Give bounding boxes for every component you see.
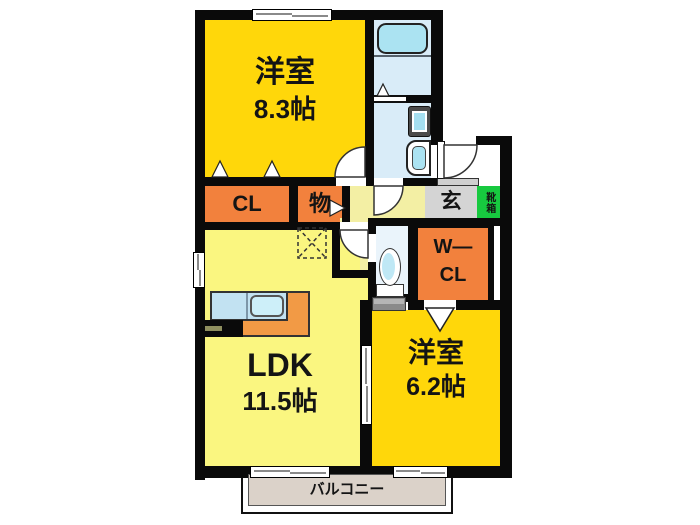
label-bedroom62-name: 洋室 xyxy=(372,336,500,370)
label-balcony: バルコニー xyxy=(248,476,446,504)
door-arc-entrance xyxy=(444,145,477,178)
label-bedroom62-size: 6.2帖 xyxy=(372,372,500,402)
label-wcl-line1: W— xyxy=(418,234,488,260)
refrigerator-space xyxy=(298,228,326,258)
floor-plan: 洋室 8.3帖 LDK 11.5帖 洋室 6.2帖 CL 物 玄 靴箱 W— C… xyxy=(0,0,700,525)
triangle-closet-door-2 xyxy=(264,161,280,177)
label-wcl-line2: CL xyxy=(418,262,488,288)
label-closet: CL xyxy=(205,186,289,222)
label-ldk-size: 11.5帖 xyxy=(210,386,350,418)
triangle-bath-door xyxy=(377,84,389,96)
door-arc-bedroom83 xyxy=(335,147,365,177)
triangle-wcl-door xyxy=(426,308,454,331)
label-bedroom83-size: 8.3帖 xyxy=(215,94,355,126)
label-shoebox: 靴箱 xyxy=(477,187,500,218)
door-arc-hall-ldk xyxy=(340,230,368,258)
triangle-closet-door-1 xyxy=(212,161,228,177)
label-ldk-name: LDK xyxy=(210,348,350,384)
label-genkan: 玄 xyxy=(425,186,477,218)
door-arc-washroom xyxy=(374,186,403,215)
label-storage: 物 xyxy=(298,186,342,222)
label-bedroom83-name: 洋室 xyxy=(215,55,355,91)
